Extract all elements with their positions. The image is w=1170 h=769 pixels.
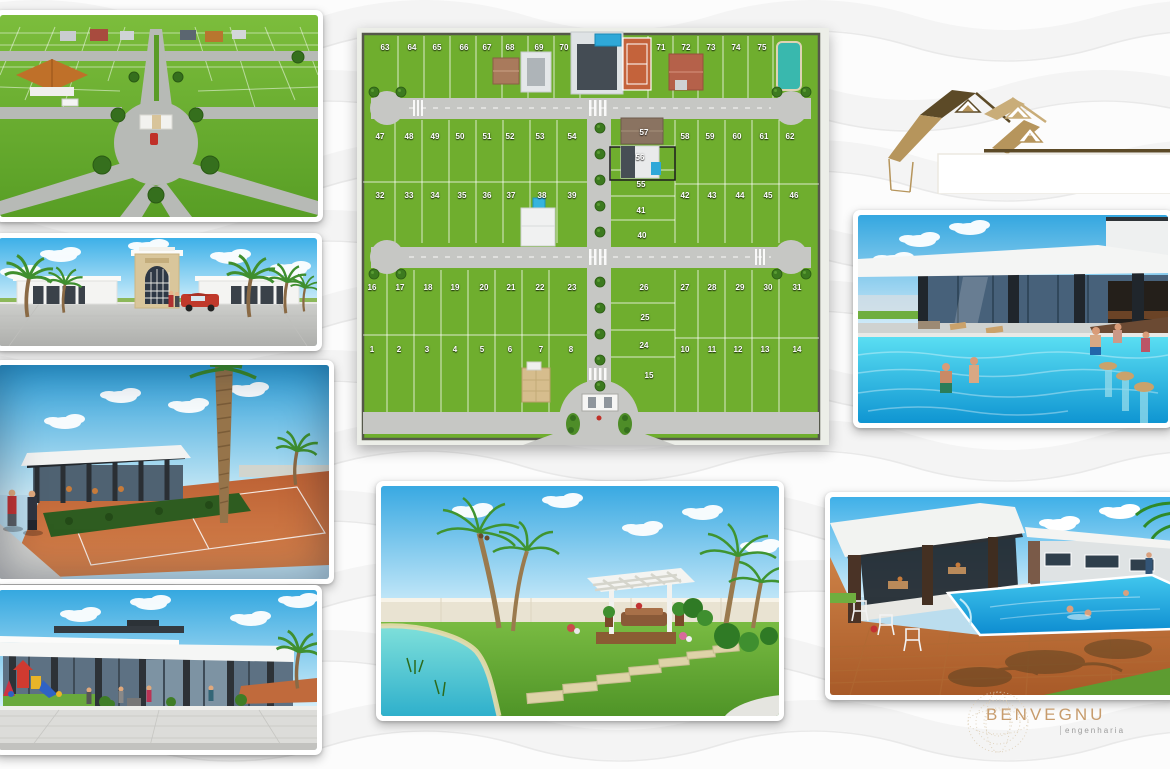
lot-number-6: 6: [508, 345, 512, 354]
lot-number-72: 72: [682, 43, 691, 52]
lot-number-57: 57: [640, 128, 649, 137]
lot-number-19: 19: [451, 283, 460, 292]
lot-number-38: 38: [538, 191, 547, 200]
lot-number-42: 42: [681, 191, 690, 200]
aerial-entrance-scene: [0, 15, 318, 217]
paved-plaza: [0, 304, 317, 346]
lot-number-68: 68: [506, 43, 515, 52]
lot-number-40: 40: [638, 231, 647, 240]
pool-bar-scene: [858, 215, 1168, 423]
photo-clubhouse-playground-render: [0, 585, 322, 755]
photo-pool-deck-render: [825, 492, 1170, 700]
lot-number-23: 23: [568, 283, 577, 292]
logo-baseline: [984, 149, 1170, 153]
lot-number-17: 17: [396, 283, 405, 292]
lot-numbers-layer: 6364656667686970717273747547484950515253…: [357, 28, 829, 445]
roof-logo: [880, 62, 1170, 194]
red-car-icon: [150, 133, 158, 145]
lot-number-65: 65: [433, 43, 442, 52]
lot-number-69: 69: [535, 43, 544, 52]
brand-tagline: engenharia: [1060, 726, 1125, 735]
lot-number-60: 60: [733, 132, 742, 141]
brand-name: BENVEGNU: [986, 705, 1105, 725]
lot-number-51: 51: [483, 132, 492, 141]
lot-number-22: 22: [536, 283, 545, 292]
clubhouse-building: [21, 445, 191, 503]
lot-number-11: 11: [708, 345, 716, 354]
lot-number-61: 61: [760, 132, 769, 141]
lot-number-66: 66: [460, 43, 469, 52]
lot-number-63: 63: [381, 43, 390, 52]
lot-number-21: 21: [507, 283, 516, 292]
lot-number-18: 18: [424, 283, 433, 292]
garden-pergola-scene: [381, 486, 779, 716]
lot-number-1: 1: [370, 345, 374, 354]
entrance-gate-scene: [0, 238, 317, 346]
lot-number-2: 2: [397, 345, 401, 354]
photo-garden-pergola-render: [376, 481, 784, 721]
lot-number-48: 48: [405, 132, 414, 141]
lot-number-70: 70: [560, 43, 569, 52]
lot-number-13: 13: [761, 345, 770, 354]
photo-clubhouse-court-render: [0, 360, 334, 584]
lot-number-75: 75: [758, 43, 767, 52]
lot-number-50: 50: [456, 132, 465, 141]
lot-number-30: 30: [764, 283, 773, 292]
lot-number-20: 20: [480, 283, 489, 292]
lot-number-35: 35: [458, 191, 467, 200]
lot-number-25: 25: [641, 313, 650, 322]
lot-number-49: 49: [431, 132, 440, 141]
lot-number-32: 32: [376, 191, 385, 200]
lot-number-27: 27: [681, 283, 690, 292]
site-plan: 6364656667686970717273747547484950515253…: [357, 28, 829, 445]
lot-number-55: 55: [637, 180, 646, 189]
lot-number-10: 10: [681, 345, 690, 354]
lot-number-53: 53: [536, 132, 545, 141]
lot-number-59: 59: [706, 132, 715, 141]
lot-number-14: 14: [793, 345, 802, 354]
lot-number-29: 29: [736, 283, 745, 292]
lot-number-62: 62: [786, 132, 795, 141]
lot-number-64: 64: [408, 43, 417, 52]
lot-number-58: 58: [681, 132, 690, 141]
lot-number-41: 41: [637, 206, 646, 215]
lot-number-15: 15: [645, 371, 654, 380]
lot-number-31: 31: [793, 283, 802, 292]
lot-number-45: 45: [764, 191, 773, 200]
deck: [596, 632, 676, 644]
lot-number-26: 26: [640, 283, 649, 292]
lot-number-47: 47: [376, 132, 385, 141]
lot-number-54: 54: [568, 132, 577, 141]
lot-number-37: 37: [507, 191, 516, 200]
lot-number-33: 33: [405, 191, 414, 200]
brand-logo: BENVEGNU engenharia: [956, 688, 1170, 760]
lot-number-52: 52: [506, 132, 515, 141]
roof-gold-slab: [888, 115, 942, 162]
lot-number-43: 43: [708, 191, 717, 200]
lot-number-12: 12: [734, 345, 743, 354]
photo-pool-bar-render: [853, 210, 1170, 428]
lot-number-16: 16: [368, 283, 377, 292]
pool-deck-scene: [830, 497, 1170, 695]
lot-number-24: 24: [640, 341, 649, 350]
logo-text-box: [938, 154, 1170, 194]
lot-number-36: 36: [483, 191, 492, 200]
photo-aerial-entrance-render: [0, 10, 323, 222]
lot-number-28: 28: [708, 283, 717, 292]
lot-number-7: 7: [539, 345, 543, 354]
photo-entrance-gate-render: [0, 233, 322, 351]
lot-number-71: 71: [657, 43, 666, 52]
lot-number-67: 67: [483, 43, 492, 52]
lot-number-8: 8: [569, 345, 573, 354]
lot-number-73: 73: [707, 43, 716, 52]
lot-number-44: 44: [736, 191, 745, 200]
lot-number-56: 56: [636, 153, 645, 162]
lot-number-5: 5: [480, 345, 484, 354]
brochure-page: 6364656667686970717273747547484950515253…: [0, 0, 1170, 769]
clubhouse-playground-scene: [0, 590, 317, 750]
lot-number-39: 39: [568, 191, 577, 200]
lot-number-3: 3: [425, 345, 429, 354]
lot-number-34: 34: [431, 191, 440, 200]
lot-number-74: 74: [732, 43, 741, 52]
clubhouse-court-scene: [0, 365, 329, 579]
lot-number-4: 4: [453, 345, 457, 354]
lot-number-46: 46: [790, 191, 799, 200]
